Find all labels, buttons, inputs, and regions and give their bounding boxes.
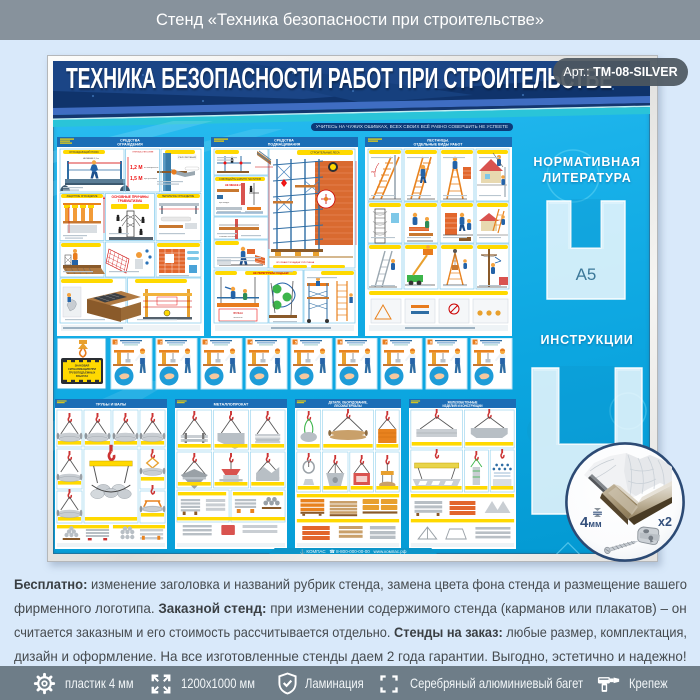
svg-text:A5: A5 <box>576 265 597 284</box>
svg-text:7: 7 <box>385 341 387 345</box>
svg-text:НЕ МЕНЕЕ 1,1 м: НЕ МЕНЕЕ 1,1 м <box>83 158 99 160</box>
svg-text:4: 4 <box>250 341 252 345</box>
svg-text:ОТДЕЛЬНЫЕ ВИДЫ РАБОТ: ОТДЕЛЬНЫЕ ВИДЫ РАБОТ <box>414 143 464 147</box>
svg-text:1,5 М: 1,5 М <box>130 176 143 182</box>
svg-text:при установке: при установке <box>144 178 158 180</box>
svg-text:ОГРАЖДЕНИЯ: ОГРАЖДЕНИЯ <box>117 143 143 147</box>
svg-text:НЕ МЕНЕЕ 2 м: НЕ МЕНЕЕ 2 м <box>225 183 243 187</box>
svg-text:ЗАЩИТНОЕ ОГРАЖДЕНИЕ: ЗАЩИТНОЕ ОГРАЖДЕНИЕ <box>67 195 98 198</box>
svg-text:ПРИ ВЫСОТЕ БОЛЕЕ: ПРИ ВЫСОТЕ БОЛЕЕ <box>133 152 154 154</box>
svg-text:от поверхности: от поверхности <box>144 167 158 169</box>
svg-text:75°: 75° <box>371 170 375 174</box>
svg-text:ЛЕСОМАТЕРИАЛЫ: ЛЕСОМАТЕРИАЛЫ <box>334 404 361 408</box>
svg-text:РАБОТАХ: РАБОТАХ <box>76 374 89 378</box>
svg-text:при кладке: при кладке <box>219 202 230 204</box>
svg-text:ЛЮЛЬКА: ЛЮЛЬКА <box>233 312 243 315</box>
svg-text:ПОДМАЩИВАНИЯ: ПОДМАЩИВАНИЯ <box>268 143 301 147</box>
svg-text:x2: x2 <box>658 515 672 529</box>
svg-text:9: 9 <box>475 341 477 345</box>
svg-text:СОБЛЮДАЙТЕ ШИРИНУ НАСТИЛОВ: СОБЛЮДАЙТЕ ШИРИНУ НАСТИЛОВ <box>219 178 261 181</box>
svg-text:2: 2 <box>160 341 162 345</box>
svg-text:8: 8 <box>430 341 432 345</box>
svg-text:МЕТАЛЛОПРОКАТ: МЕТАЛЛОПРОКАТ <box>214 401 249 406</box>
svg-text:1: 1 <box>115 341 117 345</box>
svg-text:стыковка настила: стыковка настила <box>219 236 236 238</box>
svg-text:ТРУБЫ И ВАЛЫ: ТРУБЫ И ВАЛЫ <box>96 401 127 406</box>
svg-text:3: 3 <box>205 341 207 345</box>
svg-text:6: 6 <box>340 341 342 345</box>
svg-text:1,2 М: 1,2 М <box>130 165 143 171</box>
svg-text:ЗНАКОВАЯ: ЗНАКОВАЯ <box>75 364 90 368</box>
svg-text:СИГНАЛИЗАЦИЯ ПРИ: СИГНАЛИЗАЦИЯ ПРИ <box>68 367 96 371</box>
svg-text:ОГРАЖДАЮЩИЙ ПОЯС: ОГРАЖДАЮЩИЙ ПОЯС <box>69 150 99 154</box>
svg-text:ОПОРНАЯ ПЛОЩАДКА УПЛОТНЕНА: ОПОРНАЯ ПЛОЩАДКА УПЛОТНЕНА <box>276 261 315 264</box>
svg-text:испытана: испытана <box>234 317 244 319</box>
svg-text:ГРУЗОПОДЪЕМНЫХ: ГРУЗОПОДЪЕМНЫХ <box>69 371 96 375</box>
svg-text:УЗЕЛ КРЕПЛЕНИЯ: УЗЕЛ КРЕПЛЕНИЯ <box>178 157 196 159</box>
svg-text:5: 5 <box>295 341 297 345</box>
svg-text:ИЗДЕЛИЯ И КОНСТРУКЦИИ: ИЗДЕЛИЯ И КОНСТРУКЦИИ <box>443 404 483 408</box>
svg-text:ПЕРИЛЬНОЕ ОГРАЖДЕНИЕ: ПЕРИЛЬНОЕ ОГРАЖДЕНИЕ <box>162 195 195 198</box>
svg-text:ТРАВМАТИЗМА: ТРАВМАТИЗМА <box>118 199 143 203</box>
svg-text:СТРОИТЕЛЬНЫЕ ЛЕСА: СТРОИТЕЛЬНЫЕ ЛЕСА <box>310 151 340 155</box>
